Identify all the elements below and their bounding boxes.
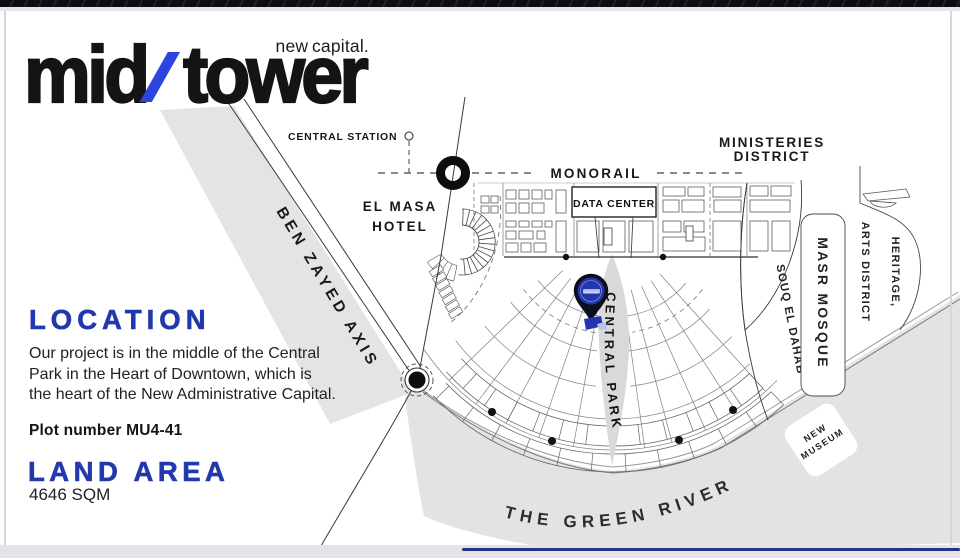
- svg-text:HOTEL: HOTEL: [372, 219, 428, 234]
- svg-text:HERITAGE,: HERITAGE,: [889, 237, 901, 308]
- svg-text:MINISTERIES: MINISTERIES: [719, 135, 825, 150]
- svg-text:EL MASA: EL MASA: [363, 199, 438, 214]
- svg-text:DISTRICT: DISTRICT: [734, 149, 811, 164]
- svg-text:CENTRAL STATION: CENTRAL STATION: [288, 131, 397, 143]
- svg-text:mid/tower: mid/tower: [583, 291, 599, 295]
- svg-text:MASR MOSQUE: MASR MOSQUE: [815, 237, 831, 369]
- svg-text:ARTS DISTRICT: ARTS DISTRICT: [859, 222, 871, 323]
- svg-text:MONORAIL: MONORAIL: [550, 166, 641, 181]
- svg-text:DATA CENTER: DATA CENTER: [573, 198, 655, 210]
